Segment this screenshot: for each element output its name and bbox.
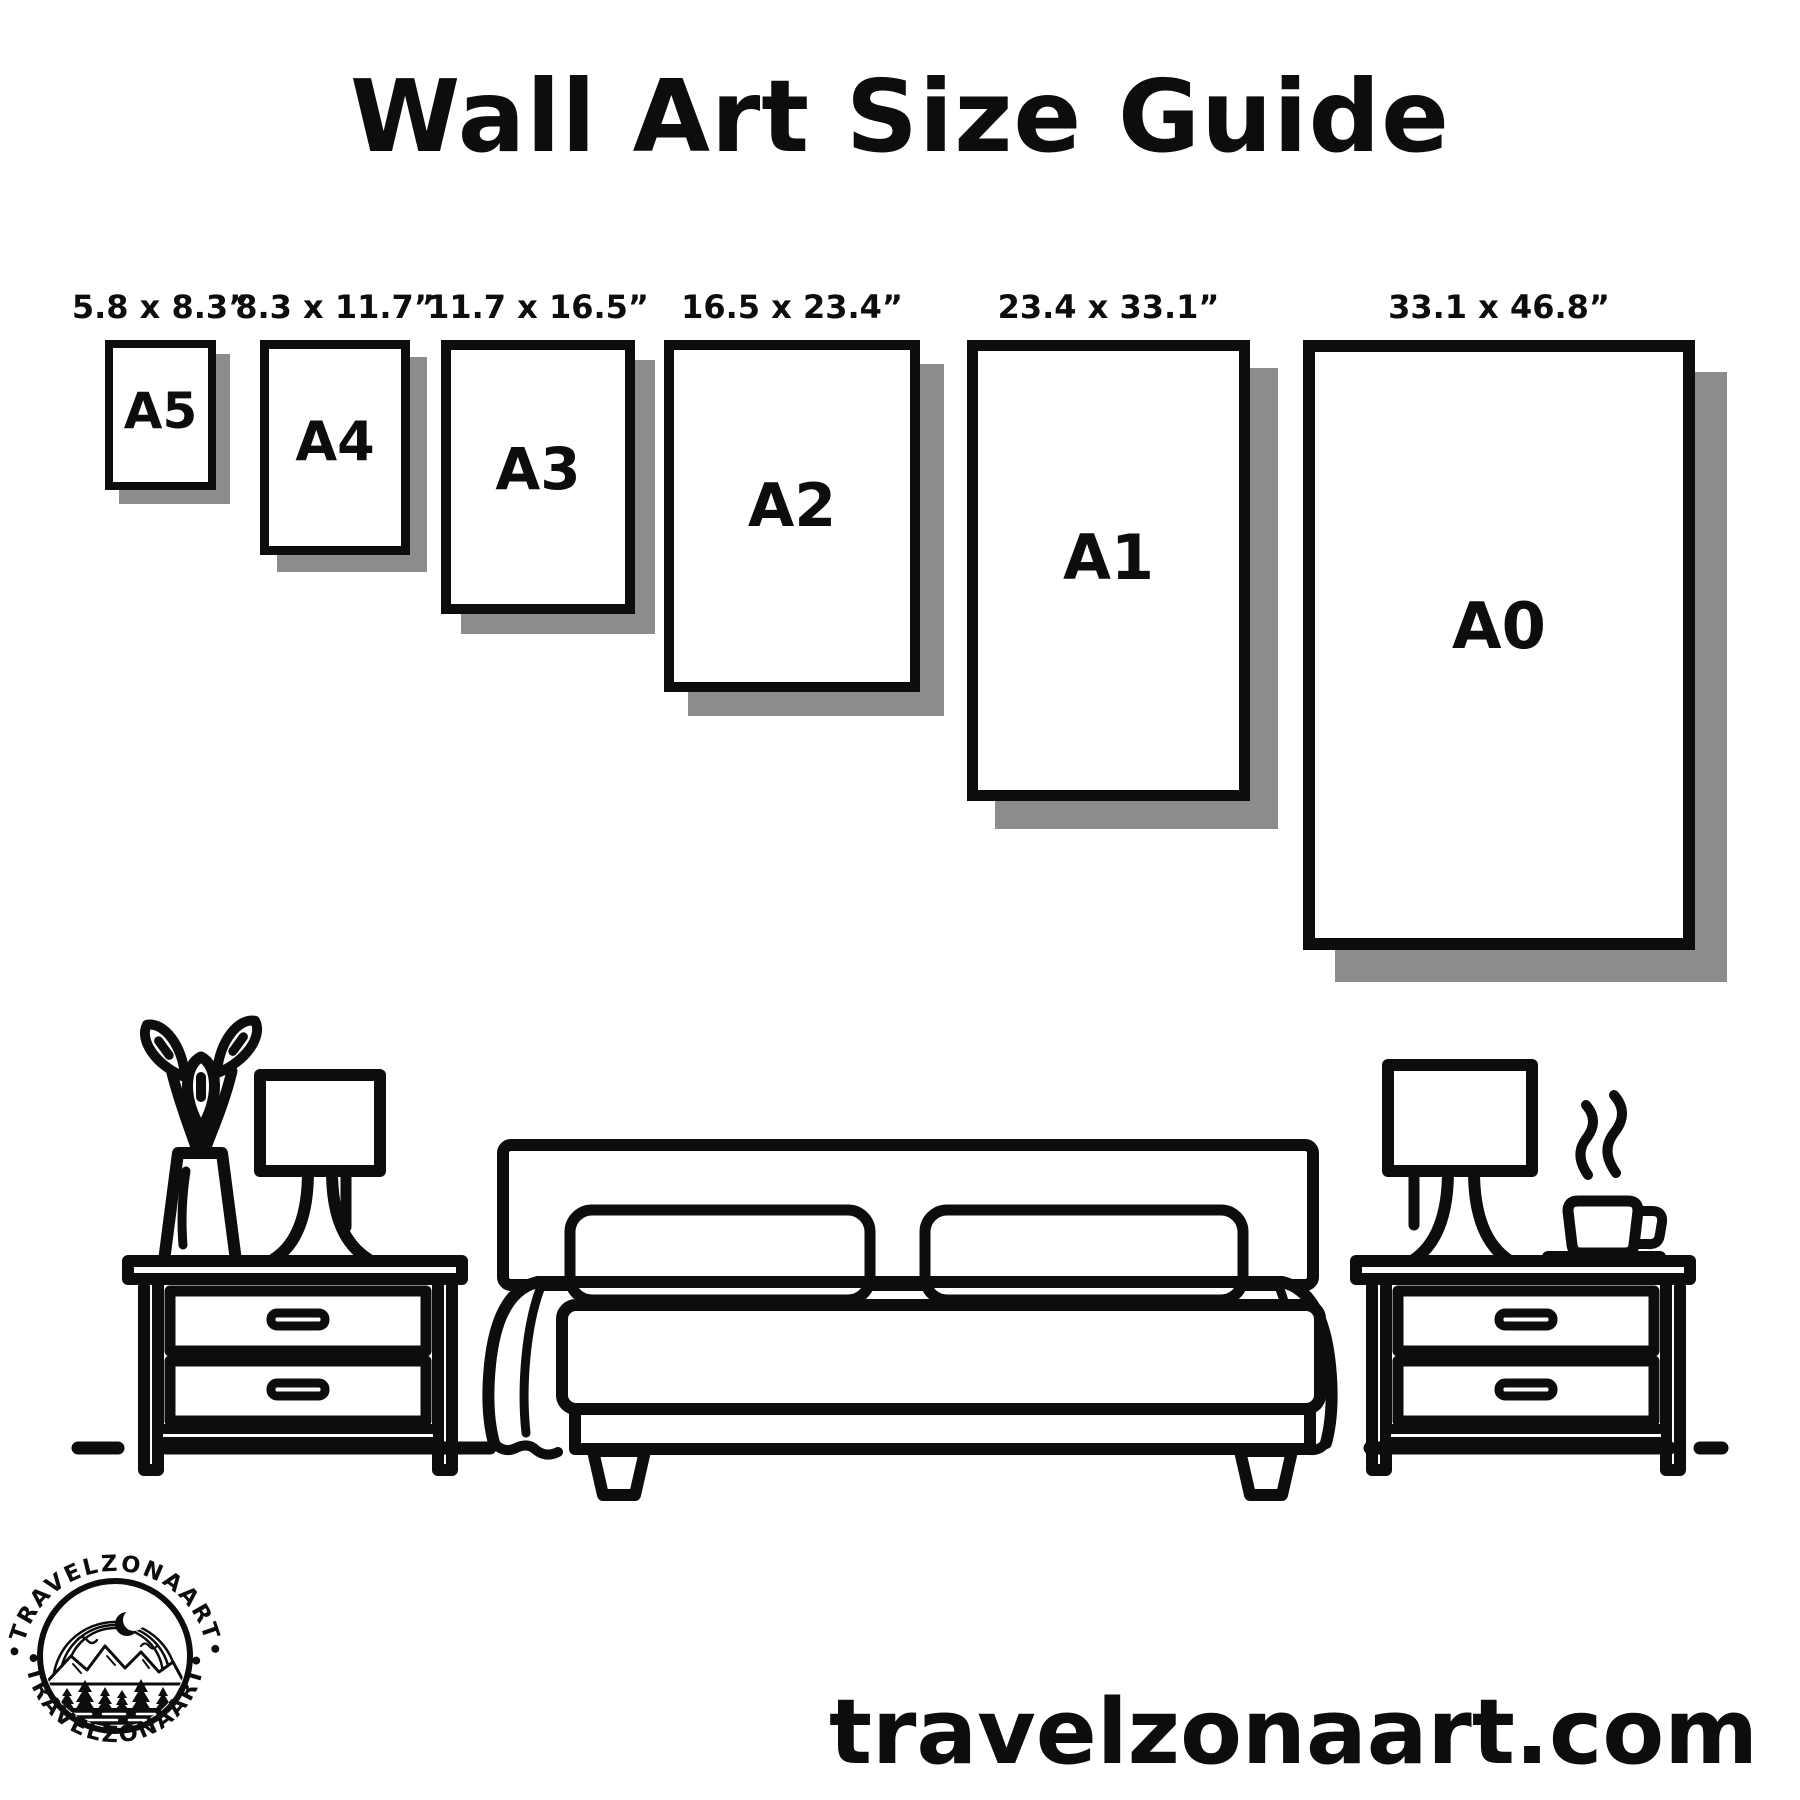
- drawer: [170, 1361, 426, 1421]
- paper-a5: A5: [105, 340, 216, 490]
- brand-logo: •TRAVELZONAART• •TRAVELZONAART•: [0, 1540, 230, 1772]
- size-letter-a1: A1: [1063, 521, 1154, 594]
- size-letter-a0: A0: [1452, 590, 1546, 664]
- size-frame-a4: 8.3 x 11.7” A4: [260, 340, 410, 555]
- size-frame-a0: 33.1 x 46.8” A0: [1303, 340, 1695, 950]
- steam-icon: [1607, 1095, 1622, 1173]
- paper-a3: A3: [441, 340, 635, 614]
- nightstand-right: [1356, 1261, 1690, 1470]
- vase: [164, 1153, 236, 1261]
- flower-vase-icon: [137, 1014, 265, 1261]
- table-lamp-left-icon: [260, 1075, 380, 1261]
- paper-a4: A4: [260, 340, 410, 555]
- leaf: [187, 1057, 214, 1129]
- bed-leg-right: [1240, 1451, 1292, 1495]
- size-frame-a3: 11.7 x 16.5” A3: [441, 340, 635, 614]
- bed-leg-left: [593, 1451, 645, 1495]
- bedroom-scene-illustration: [70, 1005, 1730, 1505]
- dimension-label-a0: 33.1 x 46.8”: [1388, 288, 1610, 326]
- mattress: [562, 1305, 1320, 1409]
- drawer: [170, 1291, 426, 1351]
- table-lamp-right-icon: [1388, 1065, 1532, 1261]
- size-letter-a4: A4: [295, 410, 374, 473]
- lamp-stem: [274, 1171, 308, 1259]
- website-url: travelzonaart.com: [829, 1680, 1758, 1785]
- sheet-hem-left: [494, 1443, 558, 1455]
- lamp-stem: [1474, 1171, 1510, 1261]
- nightstand-rail: [1386, 1429, 1666, 1442]
- bed-icon: [488, 1145, 1331, 1495]
- lamp-shade: [1388, 1065, 1532, 1171]
- coffee-mug-icon: [1548, 1095, 1662, 1257]
- drawer: [1398, 1361, 1654, 1421]
- size-guide-poster: Wall Art Size Guide 5.8 x 8.3” A5 8.3 x …: [0, 0, 1800, 1800]
- paper-a2: A2: [664, 340, 920, 692]
- dimension-label-a4: 8.3 x 11.7”: [235, 288, 435, 326]
- dimension-label-a1: 23.4 x 33.1”: [998, 288, 1220, 326]
- size-letter-a5: A5: [124, 382, 198, 440]
- lamp-shade: [260, 1075, 380, 1171]
- nightstand-left: [128, 1261, 462, 1470]
- drawer: [1398, 1291, 1654, 1351]
- size-frame-a2: 16.5 x 23.4” A2: [664, 340, 920, 692]
- mug-body: [1568, 1201, 1638, 1253]
- dimension-label-a3: 11.7 x 16.5”: [427, 288, 649, 326]
- size-frame-a1: 23.4 x 33.1” A1: [967, 340, 1250, 801]
- page-title: Wall Art Size Guide: [0, 58, 1800, 175]
- bed-base: [575, 1409, 1310, 1449]
- dimension-label-a2: 16.5 x 23.4”: [681, 288, 903, 326]
- paper-a0: A0: [1303, 340, 1695, 950]
- steam-icon: [1580, 1105, 1593, 1175]
- size-letter-a3: A3: [495, 435, 580, 503]
- vase-accent: [182, 1171, 186, 1245]
- paper-a1: A1: [967, 340, 1250, 801]
- nightstand-rail: [158, 1429, 438, 1442]
- size-letter-a2: A2: [748, 471, 836, 541]
- dimension-label-a5: 5.8 x 8.3”: [72, 288, 249, 326]
- size-frame-a5: 5.8 x 8.3” A5: [105, 340, 216, 490]
